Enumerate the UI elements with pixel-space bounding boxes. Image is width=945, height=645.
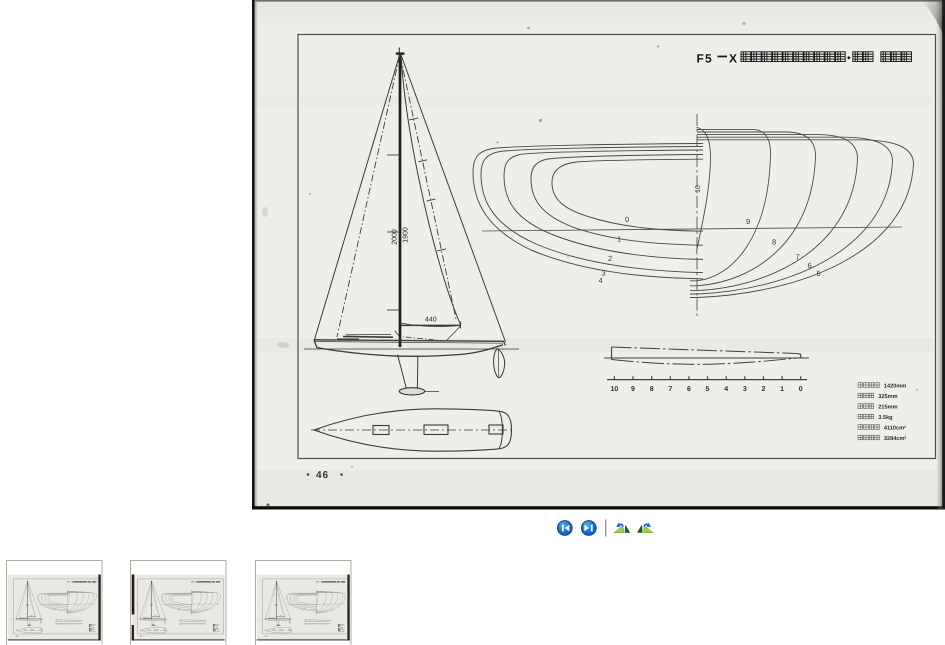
svg-text:4: 4 xyxy=(724,386,728,393)
svg-text:F5: F5 xyxy=(697,51,713,65)
svg-text:X: X xyxy=(729,51,737,65)
svg-text:10: 10 xyxy=(611,386,619,393)
svg-text:5: 5 xyxy=(817,269,821,278)
svg-text:1420mm: 1420mm xyxy=(884,383,906,389)
svg-text:3.5kg: 3.5kg xyxy=(878,414,893,421)
svg-text:0: 0 xyxy=(799,386,803,393)
svg-text:2000: 2000 xyxy=(392,229,399,245)
svg-text:6: 6 xyxy=(808,261,812,270)
svg-text:2: 2 xyxy=(761,386,765,393)
svg-text:4110cm2: 4110cm2 xyxy=(884,425,906,432)
svg-text:1: 1 xyxy=(617,235,621,244)
svg-text:215mm: 215mm xyxy=(878,404,897,410)
svg-text:0: 0 xyxy=(625,215,629,224)
svg-text:2: 2 xyxy=(608,254,612,263)
svg-text:8: 8 xyxy=(650,386,654,393)
svg-text:6: 6 xyxy=(687,386,691,393)
svg-text:1900: 1900 xyxy=(403,227,410,243)
svg-text:5: 5 xyxy=(706,386,710,393)
svg-text:9: 9 xyxy=(631,386,635,393)
svg-text:1: 1 xyxy=(780,386,784,393)
svg-text:9: 9 xyxy=(746,217,750,226)
svg-text:7: 7 xyxy=(796,253,800,262)
svg-text:3: 3 xyxy=(743,386,747,393)
svg-text:8: 8 xyxy=(772,238,776,247)
svg-text:3284cm2: 3284cm2 xyxy=(884,435,907,442)
svg-text:325mm: 325mm xyxy=(878,394,897,400)
svg-text:46: 46 xyxy=(316,470,329,481)
svg-text:7: 7 xyxy=(668,386,672,393)
svg-text:4: 4 xyxy=(599,276,603,285)
svg-text:440: 440 xyxy=(425,317,437,324)
svg-text:10: 10 xyxy=(695,185,702,193)
